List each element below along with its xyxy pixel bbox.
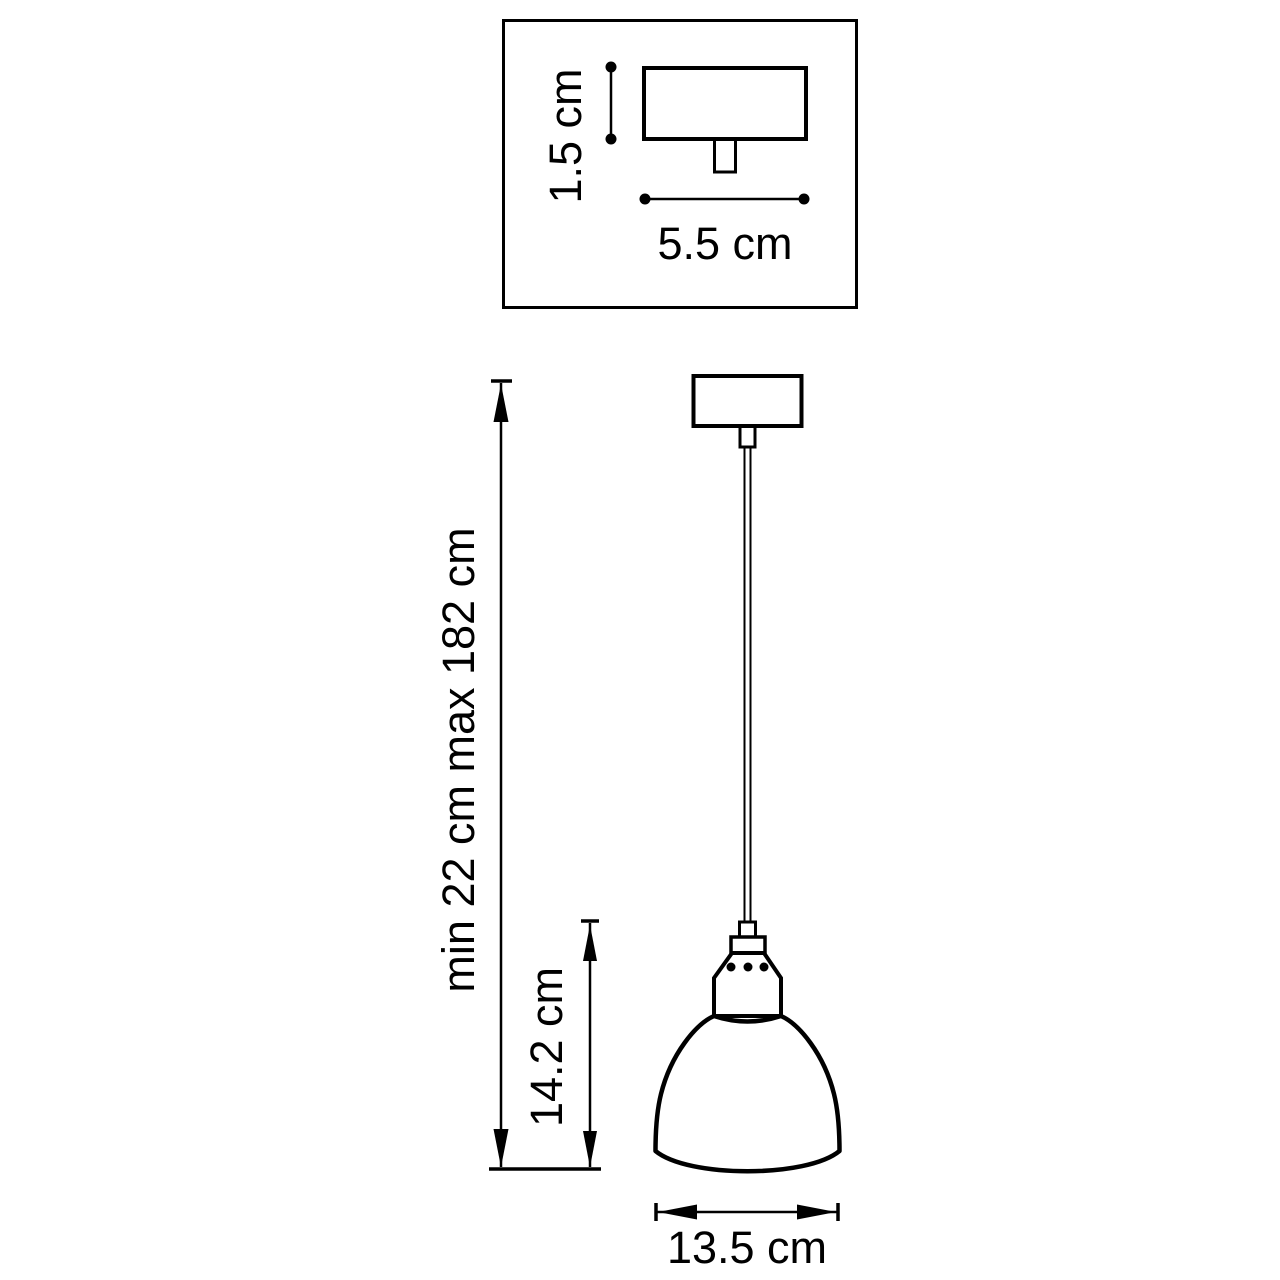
inset-width-dimension: 5.5 cm [640, 194, 810, 270]
inset-width-dim-dot-left [640, 194, 651, 205]
ceiling-canopy [694, 376, 802, 426]
shade-width-label: 13.5 cm [667, 1222, 827, 1273]
overall-height-label: min 22 cm max 182 cm [433, 527, 484, 992]
shade-height-arrow-up [583, 925, 597, 961]
socket-vent-hole-left [727, 963, 736, 972]
lamp-shade [656, 1016, 840, 1171]
inset-canopy-rect [644, 68, 806, 139]
shade-width-arrow-left [658, 1205, 697, 1220]
inset-height-dim-dot-bottom [606, 134, 617, 145]
socket-cap [731, 937, 765, 953]
inset-detail-view: 1.5 cm 5.5 cm [504, 21, 857, 308]
overall-height-arrow-up [494, 384, 509, 422]
shade-height-label: 14.2 cm [521, 967, 572, 1127]
inset-height-label: 1.5 cm [540, 68, 591, 203]
socket-vent-hole-center [744, 963, 753, 972]
shade-width-arrow-right [797, 1205, 836, 1220]
canopy-stem [740, 426, 755, 447]
shade-width-dimension: 13.5 cm [656, 1203, 838, 1273]
pendant-lamp-dimension-diagram: 1.5 cm 5.5 cm [0, 0, 1280, 1280]
cord-connector [740, 922, 756, 937]
socket-body [714, 953, 781, 1016]
overall-height-dimension: min 22 cm max 182 cm [433, 381, 601, 1169]
inset-width-dim-dot-right [799, 194, 810, 205]
inset-width-label: 5.5 cm [657, 218, 792, 269]
pendant-front-view [656, 376, 840, 1171]
inset-canopy-stem [715, 139, 736, 172]
socket-vent-hole-right [760, 963, 769, 972]
inset-height-dimension: 1.5 cm [540, 62, 617, 204]
diagram-canvas: 1.5 cm 5.5 cm [0, 0, 1280, 1280]
shade-height-dimension: 14.2 cm [521, 921, 599, 1167]
inset-height-dim-dot-top [606, 62, 617, 73]
shade-height-arrow-down [583, 1131, 597, 1167]
overall-height-arrow-down [494, 1129, 509, 1167]
